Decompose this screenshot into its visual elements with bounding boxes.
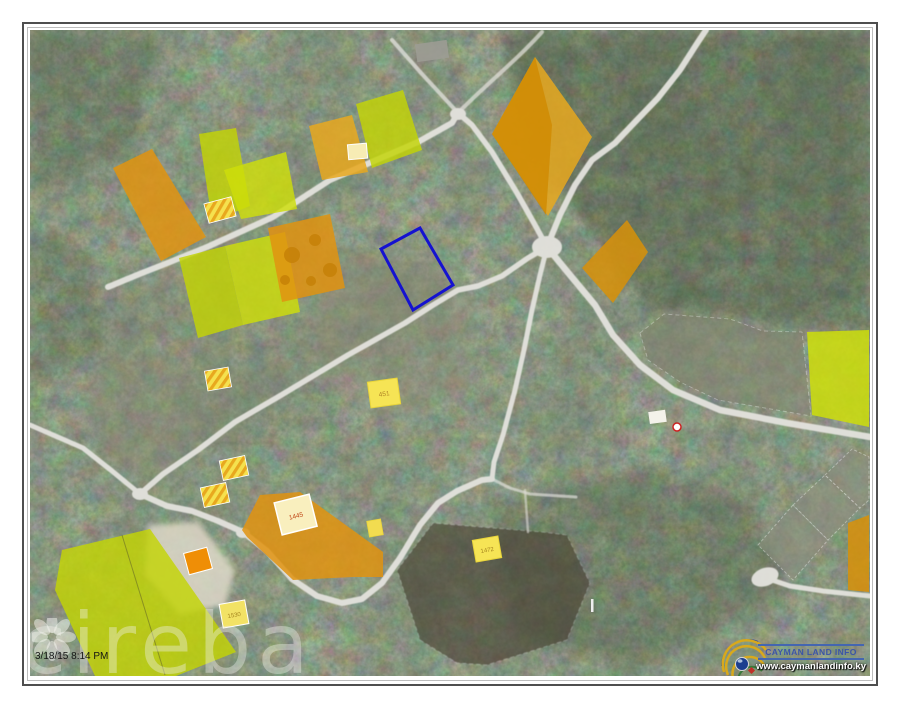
lot-marker-small [367,519,384,537]
aerial-map-canvas: 451 1472 1530 1445 [30,30,870,676]
aerial-map: 451 1472 1530 1445 [30,30,870,676]
boundary-tick [591,599,594,612]
building-footprint [347,143,367,160]
building-marker-hatched [204,367,231,391]
parcel-overlay-yellow [807,330,869,427]
lot-marker-451: 451 [367,378,400,408]
survey-point [673,423,681,431]
white-structure [648,410,667,424]
lot-marker-1530: 1530 [219,600,249,628]
parcel-overlay-orange [848,515,869,592]
lot-marker-1472: 1472 [472,536,501,562]
